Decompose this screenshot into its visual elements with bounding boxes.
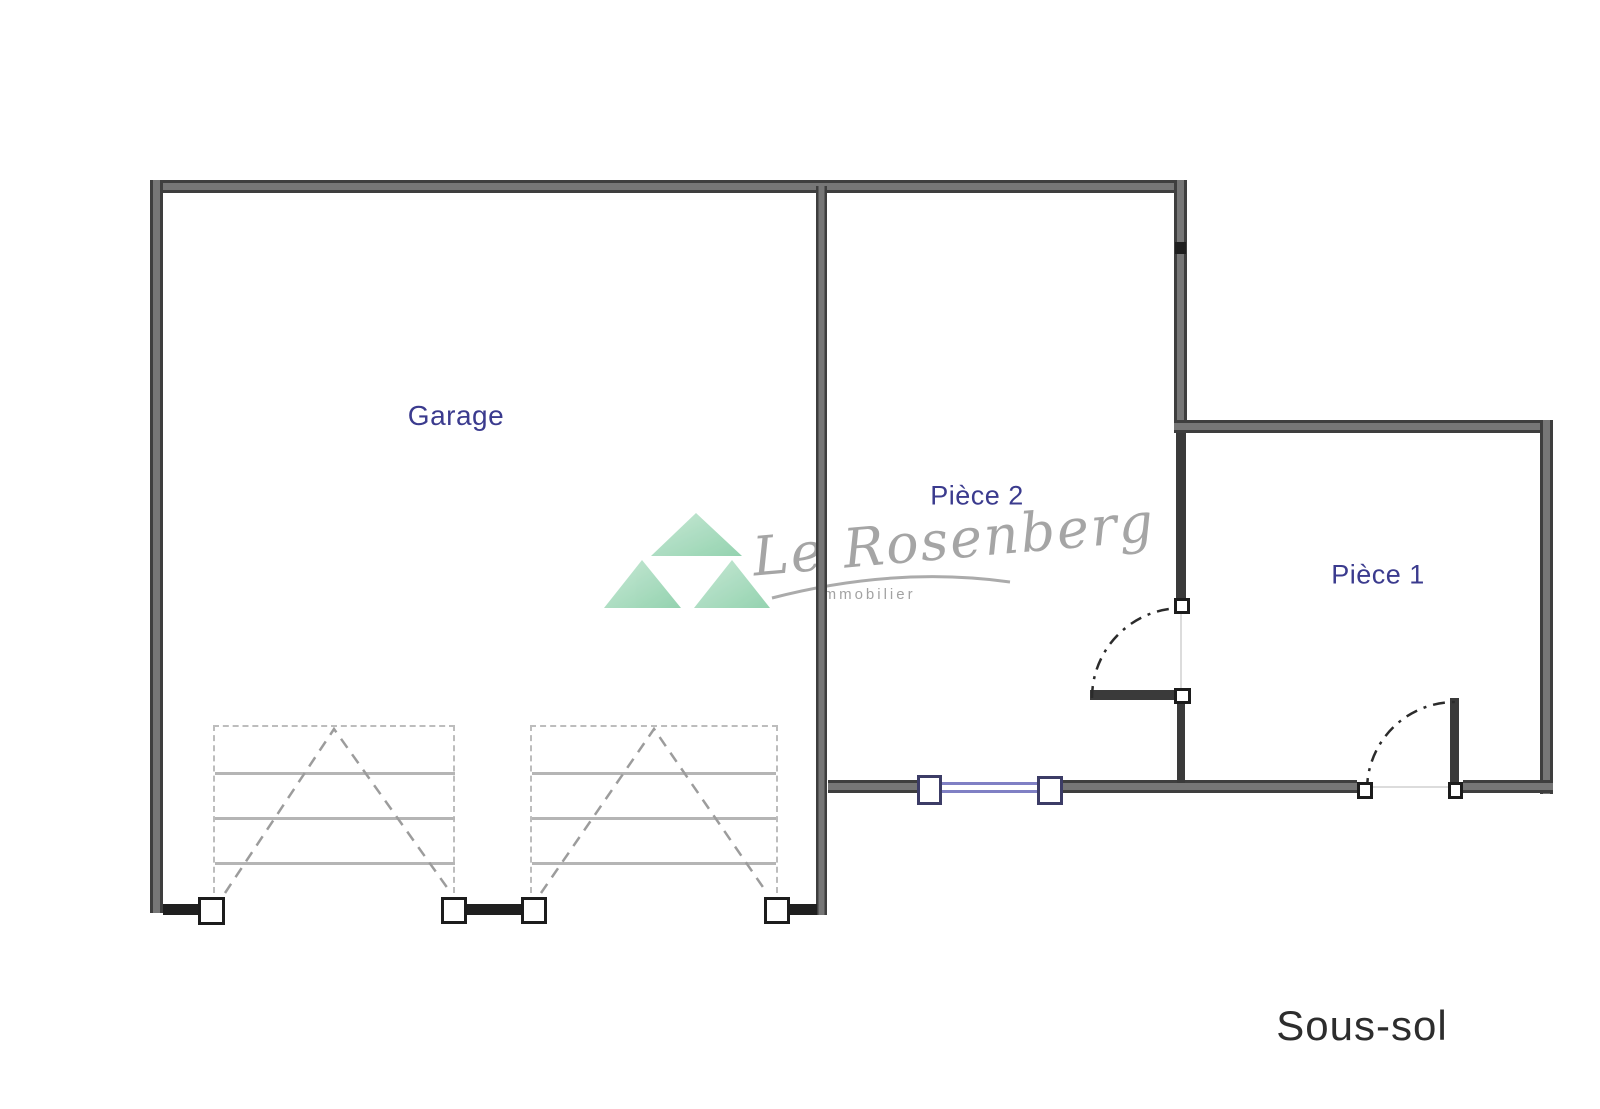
- wall-stub-right: [790, 904, 817, 915]
- wall-joint-marker: [1175, 242, 1186, 254]
- garage-jamb-1: [198, 897, 225, 925]
- door-leaf-piece1: [1450, 698, 1459, 786]
- watermark-subtitle-text: Immobilier: [816, 586, 915, 603]
- garage-jamb-2: [441, 897, 467, 924]
- wall-right-upper: [1174, 180, 1187, 433]
- window-frame-right: [1037, 776, 1063, 805]
- wall-interior-lower: [1177, 703, 1185, 783]
- window-frame-left: [917, 775, 942, 805]
- room-label-garage: Garage: [408, 400, 504, 432]
- wall-interior-upper: [1176, 433, 1186, 605]
- door-opening-piece2: [1180, 613, 1182, 688]
- wall-bottom-b: [1063, 780, 1357, 793]
- floor-plan-canvas: Le Rosenberg Immobilier: [0, 0, 1600, 1109]
- floor-title: Sous-sol: [1276, 1002, 1447, 1050]
- door-leaf-piece2: [1090, 690, 1180, 700]
- wall-right: [1540, 420, 1553, 794]
- door-opening-piece1: [1373, 786, 1448, 788]
- garage-door-left-swing-icon: [225, 729, 451, 893]
- wall-bottom-a: [828, 780, 917, 793]
- window-glazing-line-1: [942, 782, 1037, 785]
- wall-between-garage-doors: [467, 904, 522, 915]
- door-node-piece2-hinge: [1174, 688, 1191, 704]
- wall-top: [150, 180, 1187, 193]
- door-node-piece1-left: [1357, 782, 1373, 799]
- door-swing-arc-piece1: [1367, 702, 1455, 790]
- wall-stub-left: [163, 904, 200, 915]
- wall-piece1-top: [1174, 420, 1553, 433]
- wall-bottom-c: [1463, 780, 1553, 793]
- room-label-piece2: Pièce 2: [930, 481, 1024, 512]
- garage-jamb-4: [764, 897, 790, 924]
- room-label-piece1: Pièce 1: [1331, 560, 1425, 591]
- garage-door-right-swing-icon: [541, 729, 767, 893]
- door-node-piece2-top: [1174, 598, 1190, 614]
- door-swing-arc-piece2: [1092, 608, 1182, 698]
- window-glazing-line-2: [942, 790, 1037, 793]
- door-node-piece1-hinge: [1448, 782, 1463, 799]
- wall-left: [150, 180, 163, 913]
- garage-jamb-3: [521, 897, 547, 924]
- wall-middle: [816, 186, 827, 915]
